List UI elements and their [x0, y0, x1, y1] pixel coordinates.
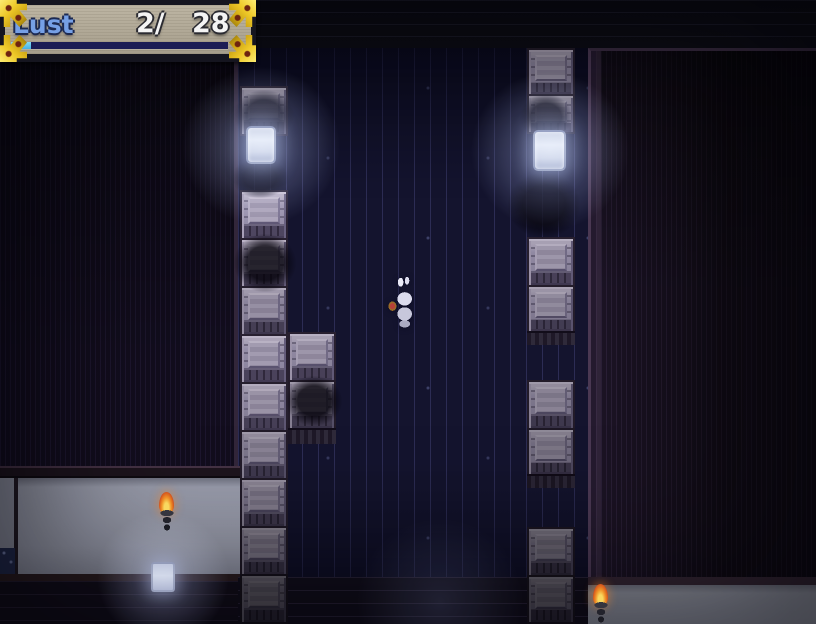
gauge-max-value: 28: [192, 10, 230, 37]
game-viewport[interactable]: Lust 2/ 28: [0, 0, 816, 624]
wooden-crate: [527, 380, 575, 430]
wooden-crate: [527, 428, 575, 476]
wooden-crate: [527, 285, 575, 333]
wooden-crate: [240, 334, 288, 384]
torch-flame-icon: [589, 584, 613, 624]
crate-slats: [527, 474, 575, 488]
wooden-crate: [240, 526, 288, 576]
crate-slats: [288, 428, 336, 444]
wooden-crate: [288, 332, 336, 382]
wooden-crate: [240, 286, 288, 336]
wooden-crate: [240, 478, 288, 528]
wooden-crate: [240, 382, 288, 432]
light-glow: [345, 507, 535, 624]
crate-slats: [527, 331, 575, 345]
player-character: [387, 276, 421, 328]
wooden-crate: [527, 237, 575, 287]
gauge-current-value: 2/: [136, 10, 165, 37]
shadow-overlay: [286, 376, 342, 426]
lust-gauge-panel: Lust 2/ 28: [0, 0, 256, 62]
gauge-bar: [11, 42, 228, 49]
gauge-panel-background: Lust 2/ 28: [0, 0, 256, 62]
sprite-layer: [0, 0, 816, 624]
wooden-crate: [240, 430, 288, 480]
light-glow: [460, 61, 640, 241]
wooden-crate: [240, 574, 288, 624]
shadow-overlay: [234, 234, 296, 292]
light-glow: [171, 56, 351, 236]
torch-flame-icon: [155, 492, 179, 532]
